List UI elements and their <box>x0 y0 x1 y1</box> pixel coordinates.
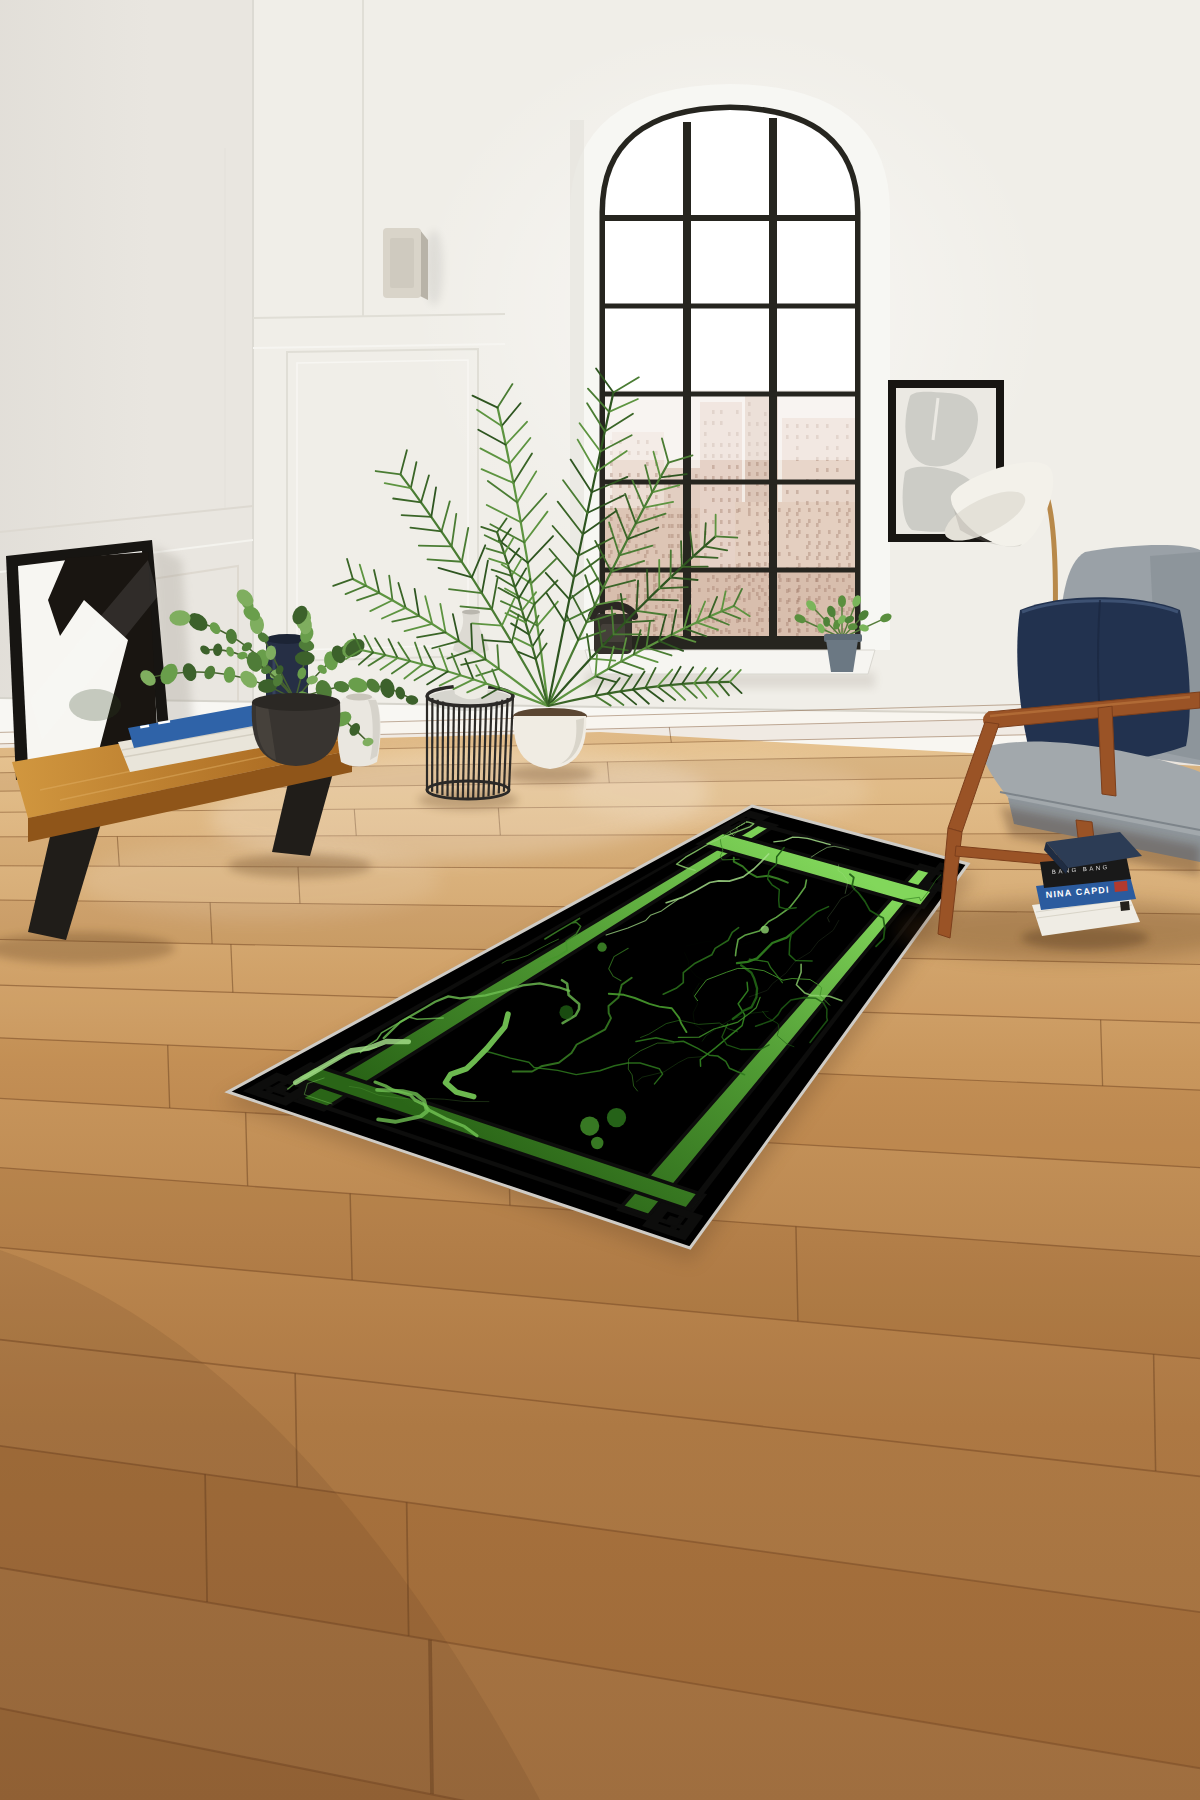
light-pool-3 <box>80 840 440 920</box>
thermostat-face <box>390 238 414 288</box>
thermostat-side <box>420 230 428 300</box>
oak-floor <box>0 699 1200 1800</box>
light-pool-2 <box>570 757 870 827</box>
book-label <box>1114 881 1128 892</box>
living-room-photo: NINA CAPDI BANG BANG <box>0 0 1200 1800</box>
plant-reflection <box>69 689 121 721</box>
book-logo <box>1120 901 1130 911</box>
arched-window <box>570 84 893 688</box>
thermostat-box <box>383 228 443 306</box>
sill-plant-pot <box>826 640 858 672</box>
